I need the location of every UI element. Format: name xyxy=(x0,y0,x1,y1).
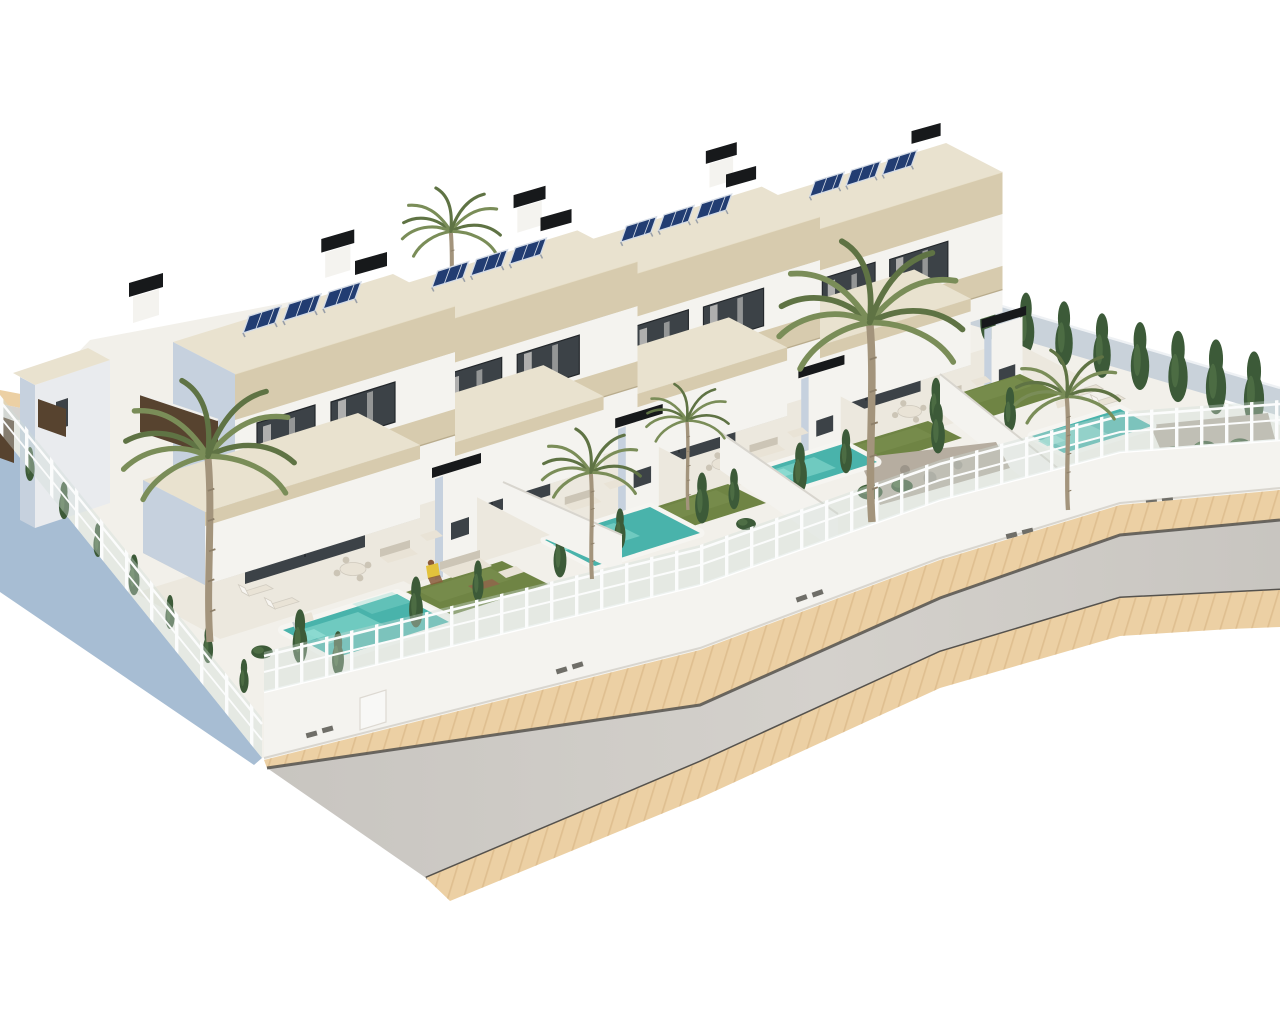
render-canvas xyxy=(0,0,1280,1024)
villa-development-render xyxy=(0,0,1280,1024)
